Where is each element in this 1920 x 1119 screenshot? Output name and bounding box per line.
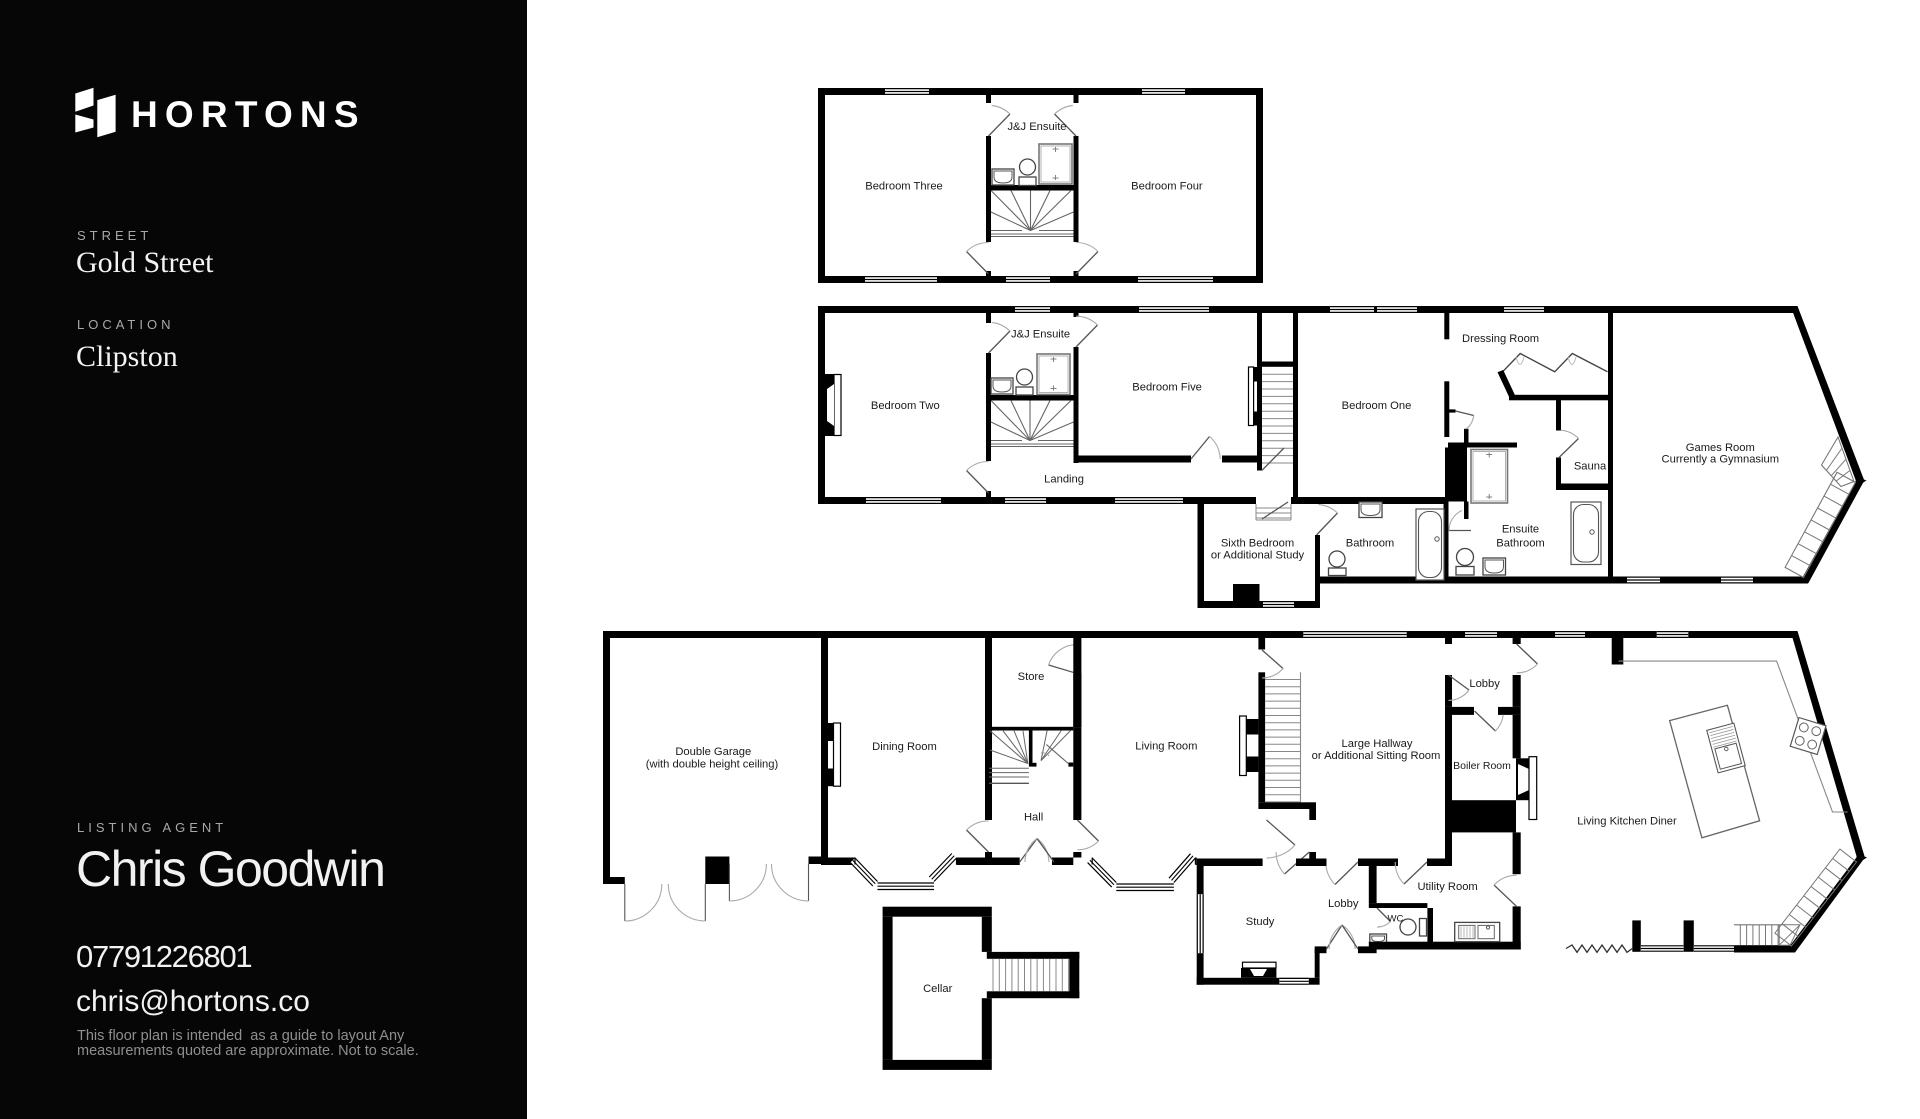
svg-text:Bathroom: Bathroom (1496, 537, 1545, 549)
svg-text:Landing: Landing (1044, 474, 1084, 486)
svg-text:or Additional Study: or Additional Study (1211, 550, 1305, 562)
svg-text:Bedroom Three: Bedroom Three (865, 181, 943, 193)
svg-text:J&J Ensuite: J&J Ensuite (1011, 329, 1070, 341)
svg-text:Large Hallway: Large Hallway (1342, 738, 1413, 750)
svg-text:Cellar: Cellar (923, 983, 952, 995)
svg-text:Study: Study (1246, 916, 1275, 928)
svg-text:Bedroom One: Bedroom One (1342, 400, 1412, 412)
svg-text:Utility Room: Utility Room (1417, 881, 1477, 893)
svg-text:Sixth Bedroom: Sixth Bedroom (1221, 538, 1294, 550)
svg-text:Lobby: Lobby (1328, 898, 1359, 910)
svg-text:Games Room: Games Room (1686, 442, 1755, 454)
svg-text:Hall: Hall (1024, 812, 1043, 824)
svg-text:Sauna: Sauna (1574, 461, 1607, 473)
svg-text:Bedroom Four: Bedroom Four (1131, 181, 1203, 193)
svg-text:Ensuite: Ensuite (1502, 524, 1539, 536)
svg-text:Lobby: Lobby (1469, 678, 1500, 690)
svg-text:Bedroom Two: Bedroom Two (871, 400, 940, 412)
svg-text:Living Kitchen Diner: Living Kitchen Diner (1577, 816, 1677, 828)
svg-text:Boiler Room: Boiler Room (1453, 760, 1511, 772)
svg-text:Double Garage: Double Garage (675, 746, 751, 758)
svg-text:Store: Store (1018, 671, 1045, 683)
svg-text:Living Room: Living Room (1135, 741, 1197, 753)
svg-text:Bathroom: Bathroom (1346, 537, 1395, 549)
svg-text:or Additional Sitting Room: or Additional Sitting Room (1312, 750, 1441, 762)
svg-text:Bedroom Five: Bedroom Five (1132, 382, 1202, 394)
svg-text:J&J Ensuite: J&J Ensuite (1007, 121, 1066, 133)
svg-text:Currently a Gymnasium: Currently a Gymnasium (1662, 453, 1780, 465)
svg-text:(with double height ceiling): (with double height ceiling) (646, 758, 779, 770)
svg-text:Dining Room: Dining Room (872, 741, 937, 753)
svg-text:Dressing Room: Dressing Room (1462, 333, 1539, 345)
svg-text:WC: WC (1387, 913, 1403, 924)
